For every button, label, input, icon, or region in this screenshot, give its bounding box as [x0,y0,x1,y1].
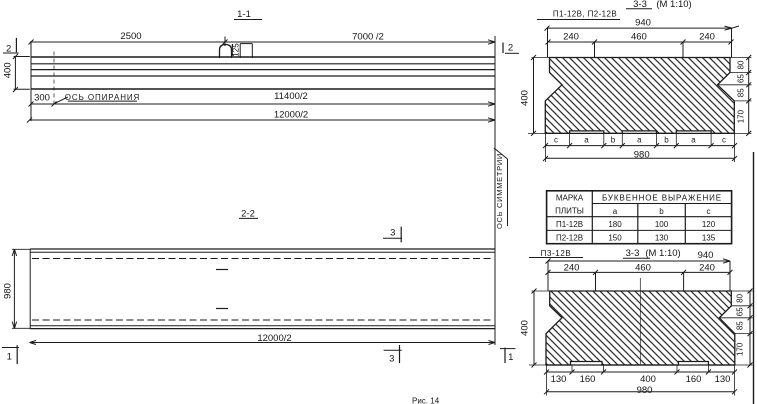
svg-text:c: c [722,136,726,145]
svg-text:940: 940 [698,250,714,261]
svg-text:(М 1:10): (М 1:10) [656,0,691,10]
svg-text:170: 170 [737,109,746,123]
svg-text:125: 125 [232,43,241,57]
svg-text:12000/2: 12000/2 [257,333,291,344]
svg-text:П1-12В, П2-12В: П1-12В, П2-12В [553,10,617,19]
svg-text:160: 160 [686,374,702,385]
svg-text:(М 1:10): (М 1:10) [645,248,680,259]
svg-text:460: 460 [635,263,651,274]
svg-text:1: 1 [508,352,513,363]
svg-text:11400/2: 11400/2 [274,91,308,102]
svg-text:120: 120 [702,220,716,229]
svg-text:980: 980 [637,385,653,396]
svg-text:2-2: 2-2 [241,209,255,220]
svg-text:7000 /2: 7000 /2 [352,32,384,43]
svg-text:2: 2 [508,43,513,54]
svg-text:МАРКА: МАРКА [556,193,584,202]
svg-text:150: 150 [608,234,622,243]
svg-text:12000/2: 12000/2 [274,109,308,120]
svg-text:П2-12В: П2-12В [556,234,583,243]
svg-text:160: 160 [580,374,596,385]
svg-text:65: 65 [737,74,746,83]
svg-text:240: 240 [699,32,715,43]
svg-text:400: 400 [3,62,14,78]
svg-text:ПЛИТЫ: ПЛИТЫ [555,206,584,215]
svg-text:Рис. 14: Рис. 14 [412,397,440,404]
svg-text:240: 240 [564,263,580,274]
svg-text:240: 240 [563,32,579,43]
svg-text:2500: 2500 [120,31,141,42]
svg-text:ОСЬ СИММЕТРИИ: ОСЬ СИММЕТРИИ [495,153,504,229]
svg-text:65: 65 [736,307,745,316]
svg-text:100: 100 [655,220,669,229]
svg-text:85: 85 [737,88,746,97]
svg-text:b: b [664,136,669,145]
svg-text:П3-12В: П3-12В [541,249,572,258]
svg-text:130: 130 [715,374,731,385]
svg-text:980: 980 [3,283,14,299]
svg-text:400: 400 [520,90,531,106]
svg-text:a: a [691,136,696,145]
svg-text:a: a [584,136,589,145]
svg-text:180: 180 [608,220,622,229]
svg-text:80: 80 [736,293,745,302]
svg-text:3: 3 [390,228,395,239]
svg-text:c: c [554,136,558,145]
svg-text:400: 400 [640,374,656,385]
svg-text:300: 300 [34,93,50,104]
svg-text:3: 3 [389,354,394,365]
svg-text:80: 80 [737,60,746,69]
svg-text:3-3: 3-3 [626,248,640,259]
svg-text:400: 400 [520,320,531,336]
svg-text:1: 1 [7,352,12,363]
svg-text:b: b [611,136,616,145]
svg-text:240: 240 [699,263,715,274]
svg-text:980: 980 [634,149,650,160]
svg-text:85: 85 [736,321,745,330]
svg-text:a: a [637,136,642,145]
svg-text:c: c [707,207,711,216]
svg-text:b: b [659,207,664,216]
svg-text:940: 940 [635,17,651,28]
svg-text:135: 135 [702,234,716,243]
svg-text:130: 130 [655,234,669,243]
svg-text:130: 130 [551,374,567,385]
svg-text:a: a [613,207,618,216]
svg-text:1-1: 1-1 [237,9,251,20]
svg-text:170: 170 [736,342,745,356]
svg-text:460: 460 [631,32,647,43]
svg-text:П1-12В: П1-12В [556,220,583,229]
svg-text:БУКВЕННОЕ ВЫРАЖЕНИЕ: БУКВЕННОЕ ВЫРАЖЕНИЕ [602,193,722,202]
